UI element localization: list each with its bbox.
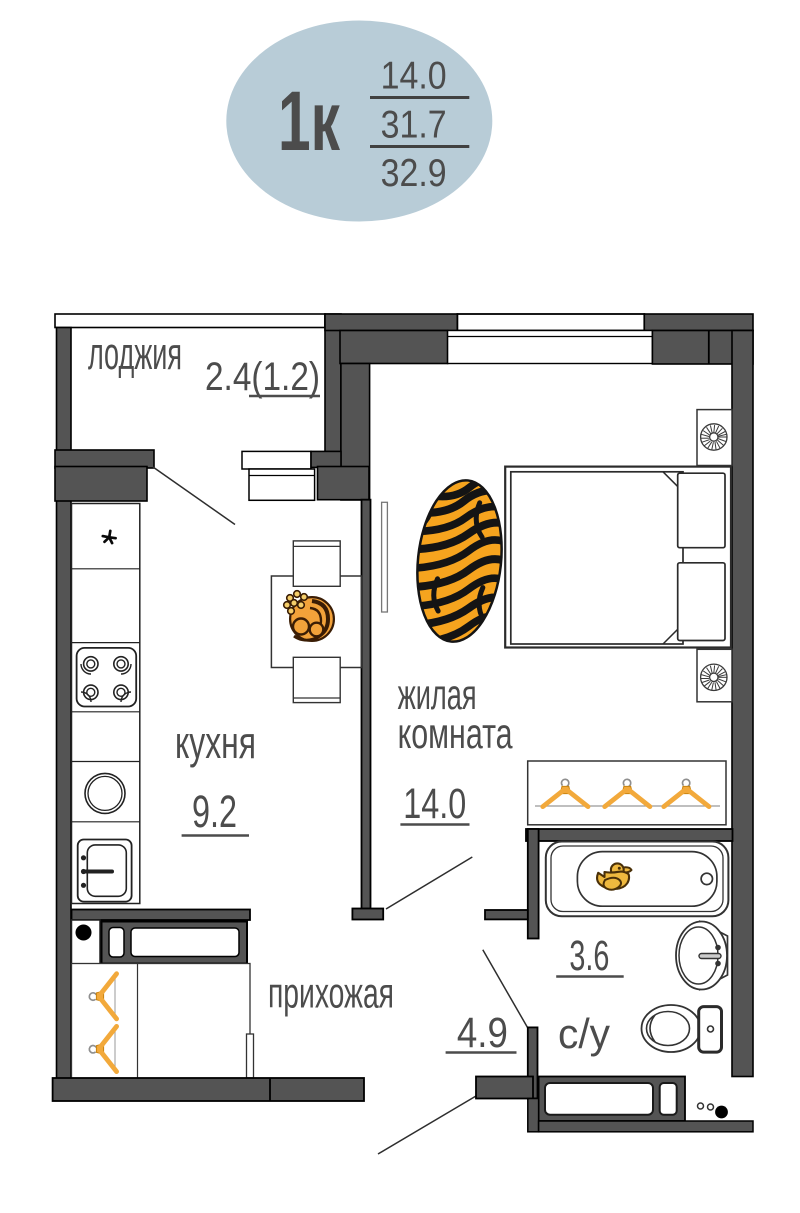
svg-text:комната: комната (398, 710, 513, 758)
svg-text:1к: 1к (278, 74, 341, 168)
svg-text:32.9: 32.9 (381, 152, 447, 195)
svg-text:4.9: 4.9 (457, 1009, 508, 1057)
svg-text:3.6: 3.6 (569, 932, 609, 980)
svg-text:с/у: с/у (558, 1010, 610, 1057)
svg-text:31.7: 31.7 (381, 104, 447, 147)
svg-text:прихожая: прихожая (268, 970, 394, 1018)
svg-text:14.0: 14.0 (403, 780, 466, 828)
svg-text:кухня: кухня (175, 717, 256, 768)
svg-text:2.4(1.2): 2.4(1.2) (205, 355, 320, 399)
svg-text:лоджия: лоджия (88, 328, 182, 379)
svg-text:14.0: 14.0 (381, 55, 447, 98)
svg-text:9.2: 9.2 (192, 786, 237, 837)
